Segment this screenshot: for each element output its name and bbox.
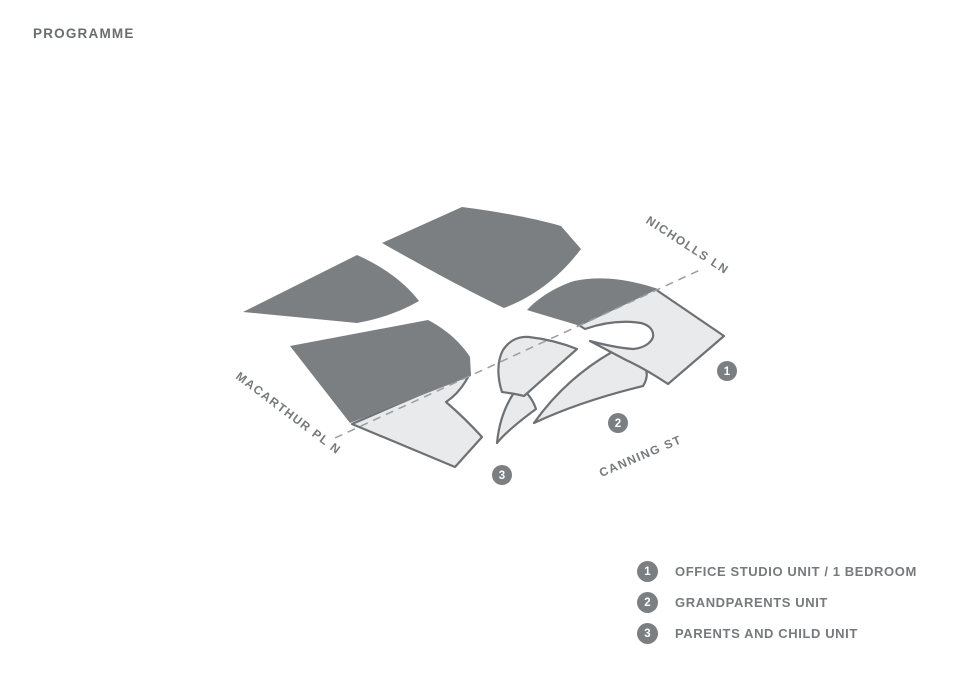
legend: 1 OFFICE STUDIO UNIT / 1 BEDROOM 2 GRAND… [637,561,917,644]
legend-number-badge: 2 [637,592,658,613]
marker-2: 2 [608,413,628,433]
block-top-left-strip [243,255,419,323]
legend-item: 2 GRANDPARENTS UNIT [637,592,917,613]
marker-3-number: 3 [499,470,505,482]
marker-1: 1 [717,361,737,381]
legend-item: 1 OFFICE STUDIO UNIT / 1 BEDROOM [637,561,917,582]
legend-number-badge: 3 [637,623,658,644]
slide: PROGRAMME NICHOLLS LN MACARTHUR PL N CAN… [0,0,980,693]
marker-3: 3 [492,465,512,485]
legend-number-badge: 1 [637,561,658,582]
street-label-nicholls-ln: NICHOLLS LN [643,213,731,277]
legend-label: OFFICE STUDIO UNIT / 1 BEDROOM [675,564,917,579]
legend-item: 3 PARENTS AND CHILD UNIT [637,623,917,644]
legend-label: GRANDPARENTS UNIT [675,595,828,610]
legend-label: PARENTS AND CHILD UNIT [675,626,858,641]
marker-2-number: 2 [615,418,621,430]
street-label-canning-st: CANNING ST [597,432,684,480]
marker-1-number: 1 [724,366,731,378]
